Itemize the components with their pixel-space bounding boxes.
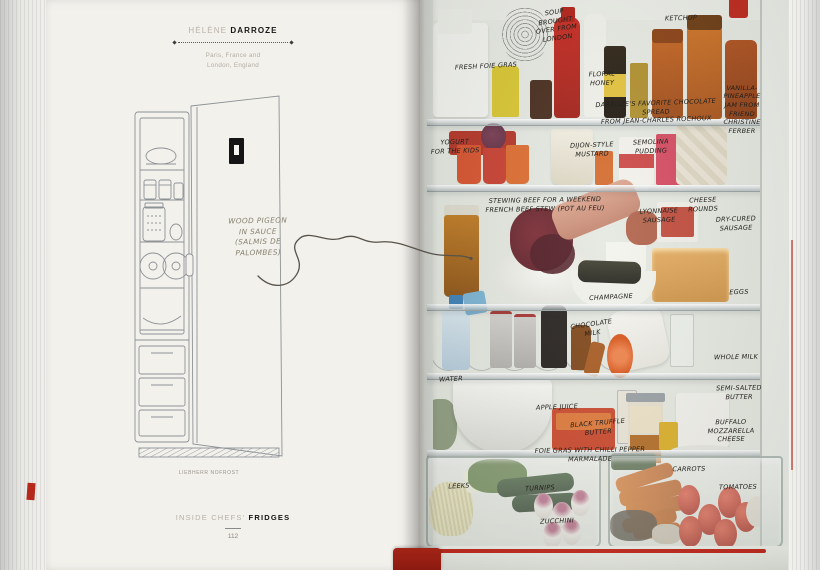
label-cheese-rounds: CHEESE ROUNDS [688, 196, 718, 214]
label-water: WATER [439, 374, 463, 384]
yogurt-pot-2 [483, 148, 507, 184]
wine-bottle [541, 305, 567, 368]
label-semolina-pudding: SEMOLINA PUDDING [633, 137, 669, 155]
label-tomatoes: TOMATOES [719, 482, 757, 491]
jam-jar-1-lid [652, 29, 683, 44]
label-ketchup: KETCHUP [665, 14, 697, 24]
right-page: SOUP BROUGHT OVER FROM LONDON KETCHUP FR… [420, 0, 788, 570]
annotation-wood-pigeon: WOOD PIGEON IN SAUCE (SALMIS DE PALOMBES… [228, 215, 288, 258]
book-title-series: INSIDE CHEFS' [176, 513, 246, 522]
label-eggs: EGGS [729, 288, 749, 297]
chef-location-line1: Paris, France and [46, 51, 420, 61]
fridge-photo: SOUP BROUGHT OVER FROM LONDON KETCHUP FR… [420, 0, 788, 570]
glass-tumbler [670, 314, 694, 367]
book-title-main: FRIDGES [249, 513, 291, 522]
label-whole-milk: WHOLE MILK [714, 352, 758, 361]
label-turnips: TURNIPS [525, 483, 555, 493]
chef-name: HÉLÈNE DARROZE [46, 26, 420, 35]
chef-first-name: HÉLÈNE [188, 26, 227, 35]
page-edges-left [0, 0, 46, 570]
chef-header: HÉLÈNE DARROZE Paris, France and London,… [46, 26, 420, 71]
label-leeks: LEEKS [448, 482, 470, 492]
water-bottle [442, 305, 470, 371]
red-bottle-top-corner [729, 0, 747, 18]
footer-divider [225, 528, 241, 529]
book-spread: HÉLÈNE DARROZE Paris, France and London,… [0, 0, 820, 570]
soup-tub [438, 9, 471, 35]
label-chocolate-spread: DARROZE'S FAVORITE CHOCOLATE SPREAD FROM… [589, 97, 722, 127]
champagne-bottle [578, 260, 641, 284]
fridge-line-drawing [133, 90, 285, 472]
chef-location: Paris, France and London, England [46, 51, 420, 71]
chef-location-line2: London, England [46, 61, 420, 71]
label-stewing-beef: STEWING BEEF FOR A WEEKEND FRENCH BEEF S… [485, 195, 604, 214]
label-dry-cured-sausage: DRY-CURED SAUSAGE [716, 214, 757, 233]
glass-shelf-2 [427, 185, 764, 192]
label-floral-honey: FLORAL HONEY [589, 70, 616, 88]
label-zucchini: ZUCCHINI [540, 516, 574, 526]
label-vanilla-pineapple-jam: VANILLA- PINEAPPLE JAM FROM FRIEND CHRIS… [723, 84, 760, 135]
clamp-jar-metal [626, 393, 665, 402]
label-apple-juice: APPLE JUICE [536, 402, 578, 412]
apple-juice-bowl [453, 379, 552, 453]
egg-carton [652, 248, 729, 302]
dotted-divider [173, 41, 293, 44]
book-spine-red-cover [393, 548, 441, 570]
label-buffalo-mozzarella: BUFFALO MOZZARELLA CHEESE [707, 417, 754, 444]
label-yogurt: YOGURT FOR THE KIDS [430, 137, 479, 156]
page-footer: INSIDE CHEFS' FRIDGES 112 [46, 513, 420, 540]
fridge-red-trim [427, 549, 766, 553]
clamp-jar-cream [630, 406, 661, 433]
page-number: 112 [46, 533, 420, 540]
yogurt-pot-3 [506, 145, 528, 184]
book-title: INSIDE CHEFS' FRIDGES [46, 513, 420, 522]
cover-red-edge-left [26, 483, 35, 501]
yellow-jar [492, 66, 520, 117]
choc-milk-can-1 [490, 311, 512, 368]
dark-jar [530, 80, 552, 119]
label-dijon-mustard: DIJON-STYLE MUSTARD [570, 140, 614, 159]
wood-pigeon-jar [444, 215, 479, 297]
cheese-bundle [676, 124, 728, 184]
choc-milk-can-2 [514, 314, 536, 368]
semolina-band [619, 154, 654, 168]
left-page: HÉLÈNE DARROZE Paris, France and London,… [46, 0, 420, 570]
vegetable-drawer-left [426, 456, 601, 548]
chef-last-name: DARROZE [230, 26, 277, 35]
label-carrots: CARROTS [672, 465, 705, 474]
label-semi-salted-butter: SEMI-SALTED BUTTER [716, 384, 762, 402]
glass-shelf-4 [427, 373, 764, 380]
glass-shelf-3 [427, 304, 764, 311]
cover-red-edge-right [791, 240, 793, 470]
label-soup: SOUP BROUGHT OVER FROM LONDON [533, 5, 579, 45]
yellow-pot [659, 422, 677, 451]
label-foie-gras-chilli: FOIE GRAS WITH CHILLI PEPPER MARMALADE [535, 445, 646, 464]
label-lyonnaise-sausage: LYONNAISE SAUSAGE [640, 206, 679, 224]
